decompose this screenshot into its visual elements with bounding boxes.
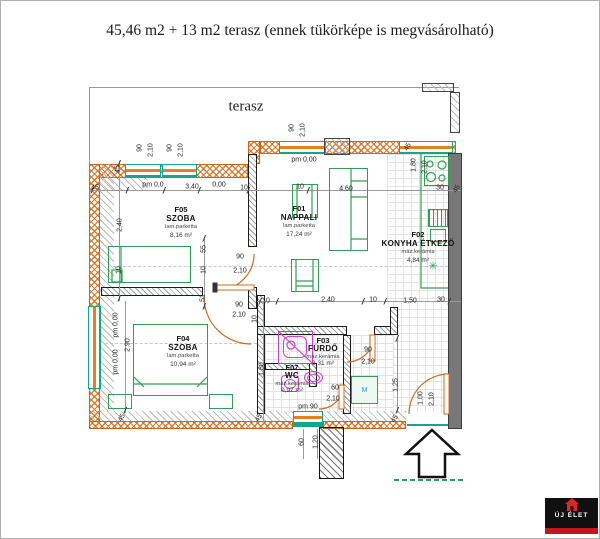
agency-logo-band: [545, 528, 598, 534]
dimension-label: 30: [436, 185, 444, 192]
dimension-tick: /: [124, 407, 127, 416]
agency-logo-text: ÚJ ÉLET: [555, 512, 589, 519]
dimension-tick: /: [247, 187, 250, 196]
room-rfloor: máz.kerámia: [382, 249, 455, 256]
floorplan-canvas: 45,46 m2 + 13 m2 terasz (ennek tükörképe…: [0, 0, 600, 539]
dimension-label: 1,25: [393, 378, 400, 392]
dimension-tick: /: [362, 298, 365, 307]
dimension-tick: /: [198, 187, 201, 196]
dimension-label: 1,80: [411, 158, 418, 172]
dimension-label: 2,10: [429, 392, 436, 406]
house-icon: [564, 498, 580, 511]
dimension-label: 1,50: [403, 298, 417, 305]
dimension-label: 1,20: [313, 435, 320, 449]
dimension-tick: /: [118, 160, 121, 169]
room-rarea: 0,97 m²: [275, 387, 308, 394]
dimension-label: 90: [236, 254, 244, 261]
dimension-label: 2,10: [422, 160, 429, 174]
dimension-tick: /: [163, 187, 166, 196]
room-label-f04: F04SZOBAlam.parketta10,94 m²: [167, 334, 199, 369]
dimension-label: pm 0,0: [142, 182, 163, 189]
room-rid: F01: [281, 204, 318, 213]
room-rname: WC: [275, 372, 308, 381]
dimension-label: 2,10: [232, 312, 246, 319]
room-rname: SZOBA: [167, 343, 199, 353]
dimension-label: pm 0,00: [113, 349, 120, 374]
dimension-label: 90: [167, 144, 174, 152]
dimension-label: 0,00: [212, 182, 226, 189]
dimension-label: 1,80: [259, 362, 266, 376]
dimension-label: 10: [116, 266, 123, 274]
dimension-label: pm 0,00: [113, 312, 120, 337]
dimension-tick: /: [448, 298, 451, 307]
room-rarea: 17,24 m²: [281, 231, 318, 239]
dimension-label: 2,40: [117, 218, 124, 232]
dimension-label: 2,10: [148, 143, 155, 157]
dimension-label: 2,10: [300, 123, 307, 137]
dimension-label: 4,60: [339, 186, 353, 193]
dimension-tick: /: [203, 235, 206, 244]
dimension-label: 2,40: [321, 297, 335, 304]
room-rid: F02: [382, 230, 455, 239]
room-label-f07: F07WCmáz.kerámia0,97 m²: [275, 364, 308, 395]
room-label-f01: F01NAPPALIlam.parketta17,24 m²: [281, 204, 318, 239]
dimension-tick: /: [307, 187, 310, 196]
dimension-label: 10: [296, 184, 304, 191]
dimension-label: 2,10: [178, 143, 185, 157]
dimension-label: 60: [299, 438, 306, 446]
room-label-f05: F05SZOBAlam.parketta8,16 m²: [165, 205, 197, 240]
room-rname: NAPPALI: [281, 213, 318, 223]
dimension-tick: /: [203, 303, 206, 312]
dimension-label: 90: [235, 302, 243, 309]
dimension-label: 2,10: [233, 268, 247, 275]
dimension-tick: /: [118, 295, 121, 304]
room-rarea: 8,16 m²: [165, 232, 197, 240]
room-rid: F04: [167, 334, 199, 343]
room-rfloor: lam.parketta: [167, 353, 199, 360]
dimension-tick: /: [396, 407, 399, 416]
dimension-label: 90: [364, 347, 372, 354]
room-rarea: 3,31 m²: [306, 360, 339, 367]
door-arcs: [204, 254, 449, 414]
entrance-arrow: [406, 430, 458, 477]
room-rfloor: lam.parketta: [281, 223, 318, 230]
dimension-label: 90: [137, 144, 144, 152]
dimension-label: 2,90: [125, 338, 132, 352]
dimension-label: 10: [369, 297, 377, 304]
dimension-label: 1,00: [418, 391, 425, 405]
dimension-label: 10: [262, 298, 270, 305]
room-rname: KONYHA ÉTKEZŐ: [382, 239, 455, 249]
room-label-f03: F03FÜRDŐmáz.kerámia3,31 m²: [306, 337, 339, 368]
dimension-label: 55: [201, 245, 208, 253]
dimension-tick: /: [276, 298, 279, 307]
dimension-label: 30: [437, 297, 445, 304]
dimension-tick: /: [126, 187, 129, 196]
room-rarea: 4,84 m²: [382, 257, 455, 265]
dimension-tick: /: [91, 187, 94, 196]
room-rid: F05: [165, 205, 197, 214]
dimension-tick: /: [396, 335, 399, 344]
dimension-label: 60: [331, 385, 339, 392]
room-rname: SZOBA: [165, 214, 197, 224]
dimension-label: 2,10: [361, 359, 375, 366]
floor-plan: terasz: [1, 1, 600, 539]
dimension-tick: /: [259, 298, 262, 307]
dimension-label: 10: [252, 315, 259, 323]
dimension-label: pm 0,00: [291, 157, 316, 164]
room-rfloor: lam.parketta: [165, 224, 197, 231]
dimension-label: pm 90: [298, 404, 317, 411]
dimension-label: 10: [201, 266, 208, 274]
dimension-label: 90: [289, 124, 296, 132]
room-rname: FÜRDŐ: [306, 345, 339, 354]
stove-burners: [427, 161, 447, 182]
room-rarea: 10,94 m²: [167, 361, 199, 369]
room-label-f02: F02KONYHA ÉTKEZŐmáz.kerámia4,84 m²: [382, 230, 455, 265]
plan-linework: [1, 1, 600, 539]
dimension-label: 2,10: [326, 396, 340, 403]
agency-logo: ÚJ ÉLET: [545, 498, 598, 534]
dimension-tick: /: [384, 298, 387, 307]
